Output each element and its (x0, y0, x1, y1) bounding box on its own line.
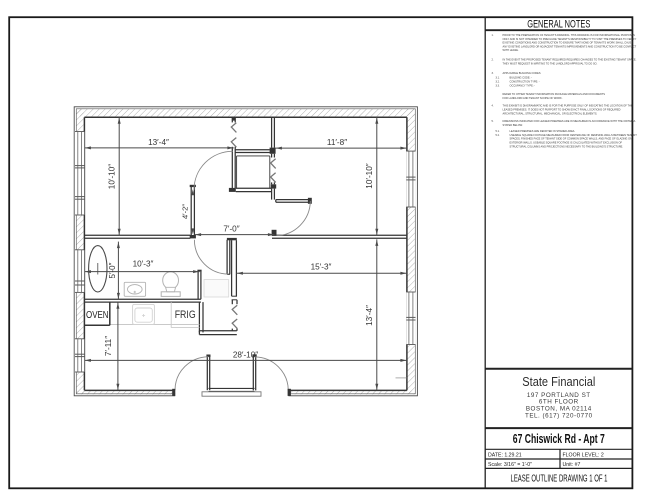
svg-text:STRUCTURAL COLUMNS AND PROJECT: STRUCTURAL COLUMNS AND PROJECTIONS NECES… (510, 144, 624, 148)
svg-text:BUILDING CODE: -: BUILDING CODE: - (510, 76, 533, 80)
svg-text:67 Chiswick Rd - Apt 7: 67 Chiswick Rd - Apt 7 (513, 432, 605, 446)
svg-text:13′-4″: 13′-4″ (365, 305, 374, 326)
svg-text:28′-10″: 28′-10″ (233, 350, 258, 359)
svg-text:CONSTRUCTION TYPE: -: CONSTRUCTION TYPE: - (510, 80, 540, 84)
svg-text:GENERAL NOTES: GENERAL NOTES (527, 18, 590, 30)
svg-text:4.: 4. (492, 104, 494, 108)
svg-text:3.3.: 3.3. (496, 84, 501, 88)
svg-text:7′-11″: 7′-11″ (104, 336, 113, 356)
svg-text:5′-0″: 5′-0″ (108, 262, 117, 278)
svg-text:10′-10″: 10′-10″ (365, 163, 374, 188)
svg-text:Unit: #7: Unit: #7 (563, 462, 581, 468)
svg-text:BOSTON, MA 02114: BOSTON, MA 02114 (526, 405, 592, 412)
svg-text:2.: 2. (492, 58, 494, 62)
svg-text:3.1.: 3.1. (496, 76, 501, 80)
svg-text:ANY EXISTING LANDLORD OR ADJAC: ANY EXISTING LANDLORD OR ADJACENT TENANT… (503, 44, 637, 48)
svg-text:15′-3″: 15′-3″ (311, 263, 332, 272)
svg-text:OCCUPANCY TYPE: -: OCCUPANCY TYPE: - (510, 84, 536, 88)
svg-text:ARCHITECTURAL, STRUCTURAL, MEC: ARCHITECTURAL, STRUCTURAL, MECHANICAL, O… (503, 111, 598, 115)
svg-text:SPACES, FINISHED FACE OF TENAN: SPACES, FINISHED FACE OF TENANT SIDE OF … (510, 137, 633, 141)
svg-text:LEASED PREMISES. IT DOES NOT: LEASED PREMISES. IT DOES NOT PURPORT TO … (503, 108, 621, 112)
svg-text:FOR LANDLORD AND TENANT SCOPE: FOR LANDLORD AND TENANT SCOPE OF WORK. (503, 96, 563, 100)
svg-text:LEASED PREMISES ARE DENOTED IN: LEASED PREMISES ARE DENOTED IN SHADED AR… (510, 129, 575, 133)
svg-text:13′-4″: 13′-4″ (148, 138, 169, 147)
svg-text:3.2.: 3.2. (496, 80, 501, 84)
svg-text:State Financial: State Financial (522, 375, 595, 389)
svg-text:USEABLE SQUARE FOOTAGE MEASURE: USEABLE SQUARE FOOTAGE MEASURED FROM CEN… (510, 133, 638, 137)
svg-text:DIMENSIONS INDICATED FOR LEASE: DIMENSIONS INDICATED FOR LEASED PREMISES… (503, 119, 636, 123)
svg-text:DATE: 1.29.21: DATE: 1.29.21 (488, 453, 522, 459)
svg-text:ONLY AND IS NOT INTENDED TO PR: ONLY AND IS NOT INTENDED TO PRECLUDE TEN… (503, 37, 637, 41)
svg-text:WITH LEASE.: WITH LEASE. (503, 48, 519, 52)
svg-text:4′-2″: 4′-2″ (181, 204, 190, 219)
svg-text:1.: 1. (492, 33, 494, 37)
svg-text:FRIG: FRIG (175, 309, 196, 321)
svg-text:PRIOR TO THE PREPARATION OF TE: PRIOR TO THE PREPARATION OF TENANT’S DRA… (503, 33, 636, 37)
svg-text:3.: 3. (492, 71, 494, 75)
svg-text:EXTERIOR WALLS. USEABLE SQUAR: EXTERIOR WALLS. USEABLE SQUARE FOOTAGE I… (510, 141, 623, 145)
svg-text:STATED BELOW:: STATED BELOW: (503, 123, 524, 127)
svg-text:THEY MUST REQUEST IN WRITING: THEY MUST REQUEST IN WRITING TO THE LAND… (503, 62, 598, 66)
svg-text:THIS EXHIBIT IS DIAGRAMMATIC A: THIS EXHIBIT IS DIAGRAMMATIC AND IS FOR … (503, 104, 633, 108)
svg-text:REFER TO OTHER TENANT INFORMAT: REFER TO OTHER TENANT INFORMATION PACKAG… (503, 92, 606, 96)
svg-text:5.2.: 5.2. (496, 133, 501, 137)
svg-text:FLOOR LEVEL: 2: FLOOR LEVEL: 2 (563, 453, 604, 459)
svg-text:IN THE EVENT THE PROPOSED TENA: IN THE EVENT THE PROPOSED TENANT REQUIRE… (503, 58, 637, 62)
svg-text:APPLICABLE BUILDING CODES: APPLICABLE BUILDING CODES (503, 71, 541, 75)
svg-text:LEASE OUTLINE DRAWING 1 OF 1: LEASE OUTLINE DRAWING 1 OF 1 (511, 473, 608, 484)
svg-text:10′-10″: 10′-10″ (108, 164, 117, 189)
svg-text:TEL. (617) 720-0770: TEL. (617) 720-0770 (525, 412, 593, 419)
svg-text:7′-0″: 7′-0″ (223, 224, 239, 233)
svg-text:Scale: 3/16″ = 1′-0″: Scale: 3/16″ = 1′-0″ (488, 462, 532, 468)
svg-text:10′-3″: 10′-3″ (133, 260, 154, 269)
svg-text:EXISTING CONDITIONS AND CONSTR: EXISTING CONDITIONS AND CONSTRUCTION TO … (503, 41, 634, 45)
svg-text:5.1.: 5.1. (496, 129, 501, 133)
svg-text:OVEN: OVEN (86, 310, 109, 321)
svg-text:11′-8″: 11′-8″ (327, 138, 347, 147)
svg-text:5.: 5. (492, 119, 494, 123)
